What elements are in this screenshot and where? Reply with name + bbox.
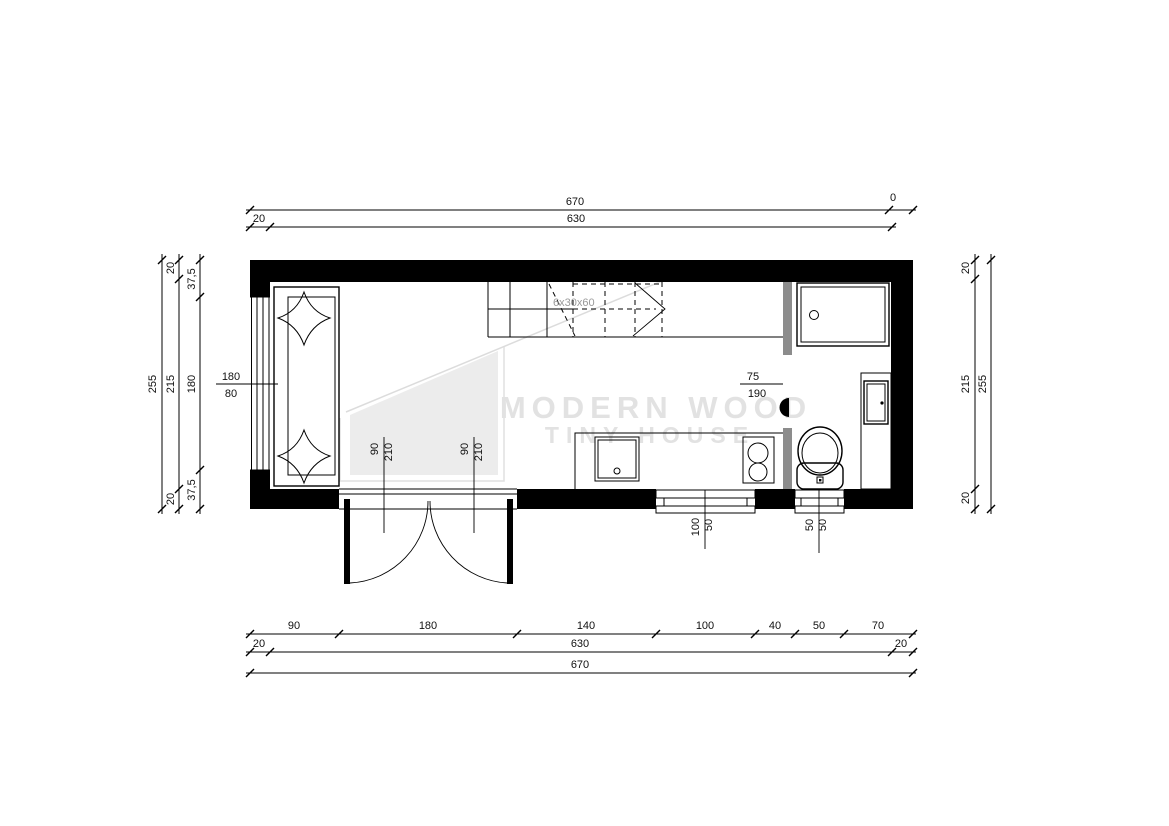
tall-cabinet	[861, 373, 891, 489]
kitchen-opening-height-label: 50	[703, 519, 715, 531]
door-leaf-width-label: 90	[459, 443, 471, 455]
dim-bottom-total: 670	[571, 659, 589, 671]
dim-bottom-inner: 630	[571, 638, 589, 650]
watermark: MODERN WOOD TINY HOUSE	[340, 281, 812, 481]
dim-bottom-wall-right: 20	[895, 638, 907, 650]
dim-bottom-wall-left: 20	[253, 638, 265, 650]
dim-right-wall-top: 20	[960, 262, 972, 274]
dim-left-wall-bottom: 20	[165, 493, 177, 505]
floor-plan-canvas: MODERN WOOD TINY HOUSE	[0, 0, 1169, 826]
dimensions-bottom: 90 180 140 100 40 50 70 20 630 20 670	[246, 620, 917, 677]
dim-left-window-width: 180	[186, 375, 198, 393]
partition-wall	[783, 282, 792, 489]
door-leaf-width-label: 90	[369, 443, 381, 455]
window-width-label: 180	[222, 371, 240, 383]
dim-left-window-top-offset: 37,5	[186, 268, 198, 289]
dim-right-inner: 215	[960, 375, 972, 393]
shower-drain-icon	[810, 311, 819, 320]
door-leaf-height-label: 210	[473, 443, 485, 461]
kitchen-opening-width-label: 100	[690, 518, 702, 536]
dim-bottom-seg: 70	[872, 620, 884, 632]
bath-door-width-label: 75	[747, 371, 759, 383]
burner-icon	[749, 463, 767, 481]
dim-bottom-seg: 50	[813, 620, 825, 632]
dimensions-right: 20 215 20 255	[960, 254, 995, 514]
wc-opening-width-label: 50	[804, 519, 816, 531]
dim-bottom-seg: 140	[577, 620, 595, 632]
dim-top-zero: 0	[890, 192, 896, 204]
shower-tray	[797, 283, 889, 346]
dimensions-left: 255 20 215 20 37,5 180 37,5	[147, 254, 204, 514]
kitchen-opening-steps: 100 50	[656, 490, 755, 549]
dim-left-inner: 215	[165, 375, 177, 393]
door-leaf-right	[507, 499, 513, 584]
sink-drain-icon	[614, 468, 620, 474]
dim-bottom-seg: 180	[419, 620, 437, 632]
wc-opening-steps: 50 50	[795, 490, 844, 553]
cabinet-handle-icon	[880, 401, 883, 404]
bath-door-height-label: 190	[748, 388, 766, 400]
door-leaf-left	[344, 499, 350, 584]
sofa	[274, 287, 339, 486]
dim-right-total: 255	[977, 375, 989, 393]
door-swing-left	[350, 501, 428, 583]
dim-top-wall: 20	[253, 213, 265, 225]
dimensions-top: 670 0 20 630	[246, 192, 917, 231]
dim-bottom-seg: 90	[288, 620, 300, 632]
stairs-label: 6x30x60	[553, 297, 595, 309]
dim-left-total: 255	[147, 375, 159, 393]
floor-plan-page: MODERN WOOD TINY HOUSE	[0, 0, 1169, 826]
door-swing-right	[430, 501, 507, 583]
stairs: 6x30x60	[488, 282, 783, 337]
burner-icon	[748, 443, 768, 463]
dim-right-wall-bottom: 20	[960, 492, 972, 504]
dim-left-wall-top: 20	[165, 262, 177, 274]
wc-opening-height-label: 50	[817, 519, 829, 531]
watermark-text-2: TINY HOUSE	[545, 422, 755, 448]
dim-bottom-seg: 40	[769, 620, 781, 632]
door-leaf-height-label: 210	[383, 443, 395, 461]
dim-top-total: 670	[566, 196, 584, 208]
window-sill-label: 80	[225, 388, 237, 400]
dim-top-inner: 630	[567, 213, 585, 225]
sofa-pillow-top	[278, 292, 330, 345]
left-wall-window	[250, 297, 270, 470]
dim-bottom-seg: 100	[696, 620, 714, 632]
dim-left-window-bottom-offset: 37,5	[186, 479, 198, 500]
toilet	[797, 427, 843, 489]
